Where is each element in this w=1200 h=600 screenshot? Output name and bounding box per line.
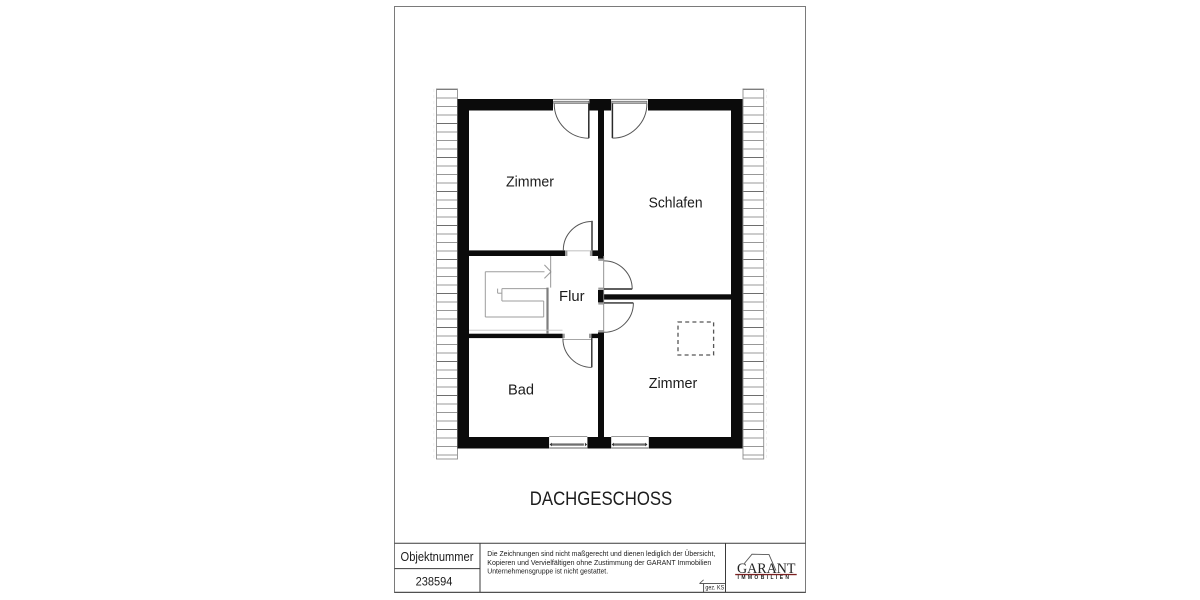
svg-text:Zimmer: Zimmer (649, 376, 698, 392)
svg-text:gez. KS: gez. KS (705, 585, 724, 592)
svg-text:IMMOBILIEN: IMMOBILIEN (738, 575, 790, 581)
svg-text:Die Zeichnungen sind nicht maß: Die Zeichnungen sind nicht maßgerecht un… (487, 550, 715, 558)
svg-text:Flur: Flur (559, 289, 585, 305)
svg-text:Kopieren und Vervielfältigen o: Kopieren und Vervielfältigen ohne Zustim… (487, 559, 711, 567)
svg-text:Objektnummer: Objektnummer (401, 549, 474, 564)
svg-text:238594: 238594 (416, 574, 453, 588)
svg-text:Zimmer: Zimmer (506, 175, 554, 191)
svg-text:DACHGESCHOSS: DACHGESCHOSS (530, 488, 672, 510)
svg-text:Schlafen: Schlafen (649, 196, 703, 212)
svg-text:Unternehmensgruppe ist nicht g: Unternehmensgruppe ist nicht gestattet. (487, 567, 608, 575)
svg-text:Bad: Bad (508, 383, 534, 399)
